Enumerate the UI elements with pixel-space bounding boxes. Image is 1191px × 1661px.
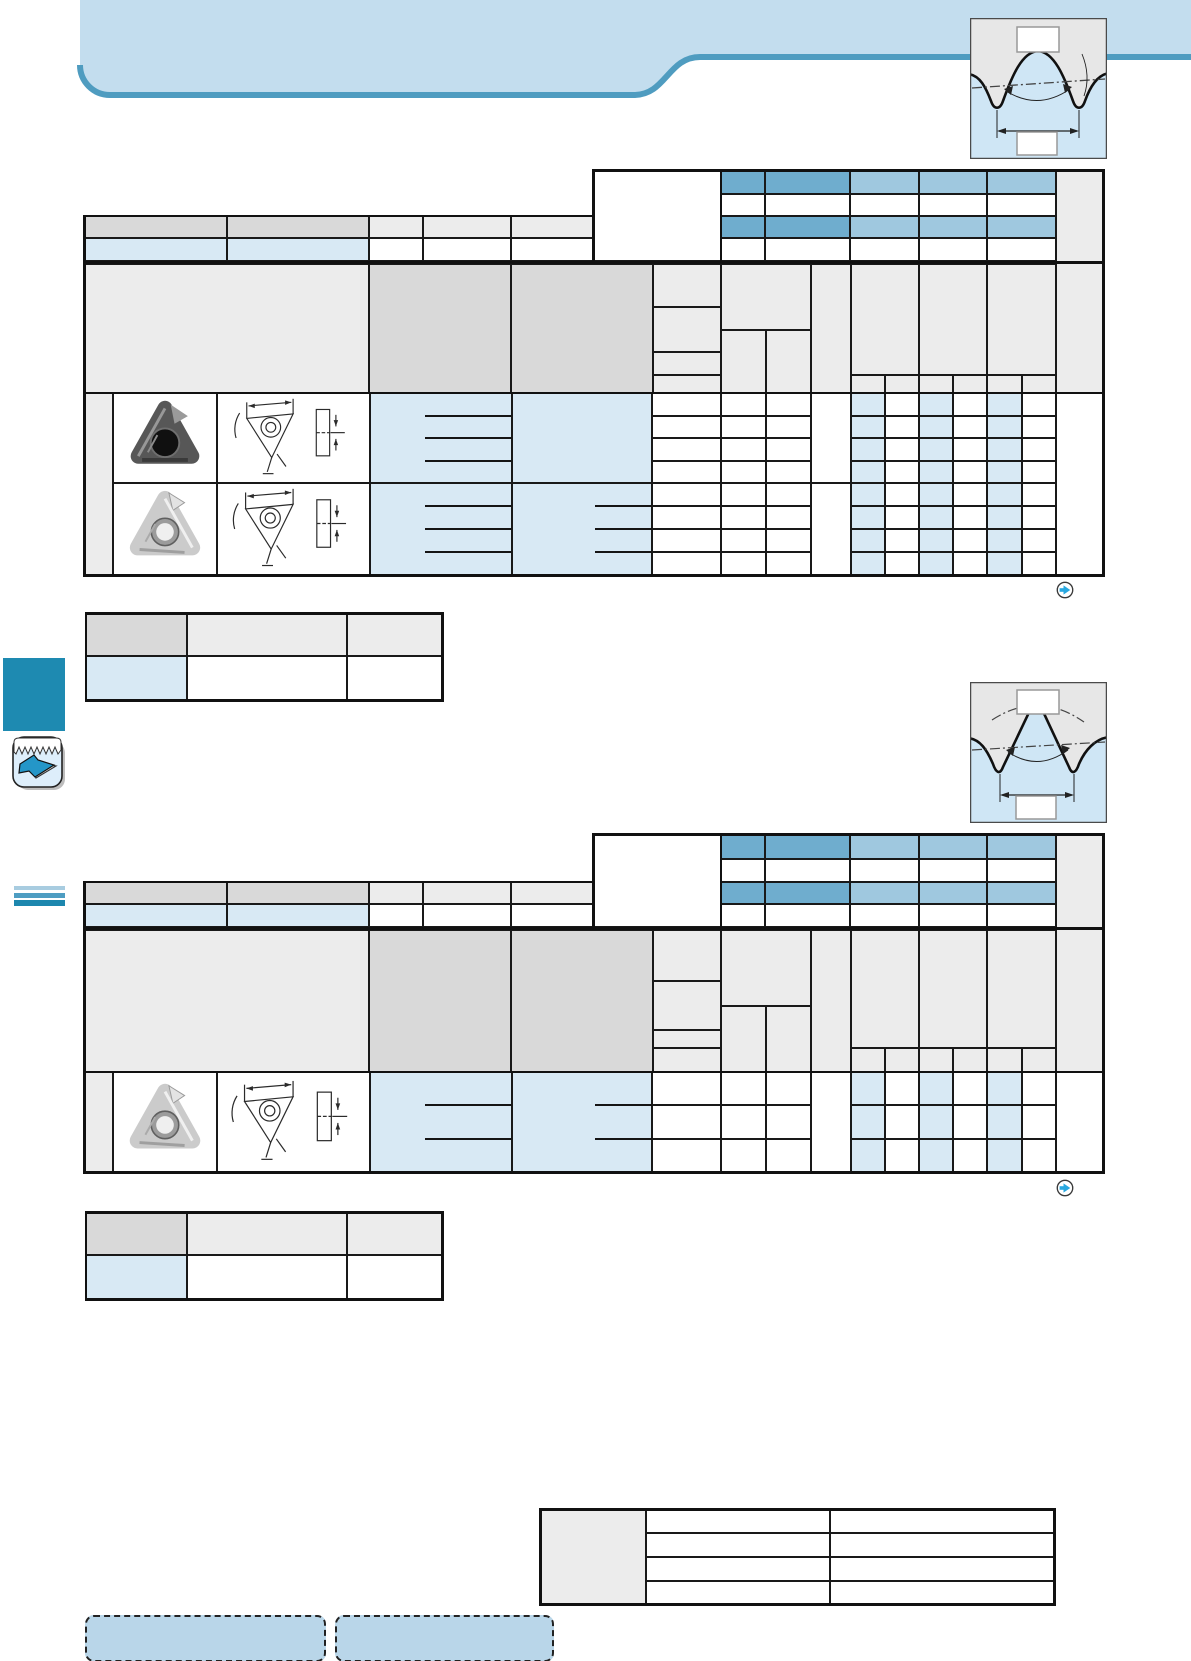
table-border [1102, 833, 1105, 1174]
grade-cell [1022, 506, 1056, 529]
header-cell [851, 930, 919, 1048]
grade-cell [851, 393, 885, 416]
grade-cell [953, 1105, 987, 1138]
header-cell [850, 194, 919, 216]
thread-profile-diagram-full [970, 18, 1107, 164]
header-cell [85, 264, 369, 393]
header-cell [653, 375, 721, 393]
table-border [85, 612, 88, 701]
designation-line [425, 1104, 512, 1106]
dimension-cell [652, 393, 721, 416]
grade-cell [851, 461, 885, 484]
header-cell [766, 1006, 811, 1072]
note-header-cell [187, 613, 347, 656]
grade-cell [851, 506, 885, 529]
catalog-page [0, 0, 1191, 1661]
header-cell [721, 859, 765, 882]
header-cell [653, 307, 721, 352]
reference-cell [830, 1533, 1055, 1557]
grade-cell [987, 438, 1022, 461]
header-cell [850, 216, 919, 238]
header-cell [811, 264, 851, 393]
dimension-cell [766, 483, 811, 506]
note-header-cell [86, 613, 187, 656]
grade-cell [987, 393, 1022, 416]
table-border [85, 1211, 88, 1300]
header-cell [369, 238, 423, 261]
header-cell [511, 264, 653, 393]
header-cell [850, 904, 919, 927]
grade-cell [851, 1139, 885, 1172]
grade-cell [885, 416, 919, 439]
header-cell [653, 1048, 721, 1072]
designation-cell [512, 393, 652, 483]
table-border [720, 834, 722, 927]
header-cell [721, 330, 766, 393]
grade-cell [885, 1105, 919, 1138]
header-cell [919, 930, 987, 1048]
table-border [83, 1071, 1105, 1074]
grade-cell [1022, 1139, 1056, 1172]
grade-cell [1022, 416, 1056, 439]
designation-line [595, 528, 652, 530]
header-cell [765, 882, 850, 904]
header-cell [953, 375, 987, 393]
header-cell [953, 1048, 987, 1072]
dimension-cell [721, 552, 766, 575]
index-stripe-2 [14, 893, 65, 898]
table-border [83, 927, 1105, 930]
note-header-cell [187, 1212, 347, 1255]
table-border [592, 169, 1105, 172]
stock-cell [1056, 1072, 1105, 1172]
index-stripe-3 [14, 900, 65, 906]
insert-photo [116, 397, 214, 479]
grade-cell [1022, 393, 1056, 416]
header-cell [653, 264, 721, 307]
dimension-cell [721, 1139, 766, 1172]
table-border [85, 612, 444, 615]
header-cell [919, 170, 987, 194]
header-cell [423, 238, 511, 261]
dimension-cell [766, 461, 811, 484]
dimension-cell [766, 393, 811, 416]
note-cell [347, 1255, 443, 1299]
table-border [83, 392, 1105, 395]
insert-drawing [224, 1076, 364, 1168]
table-border [592, 833, 1105, 836]
designation-cell [512, 1072, 652, 1172]
reference-cell [830, 1581, 1055, 1605]
header-cell [919, 904, 987, 927]
header-cell [765, 170, 850, 194]
table-border [83, 215, 86, 577]
grade-cell [885, 461, 919, 484]
header-cell [721, 170, 765, 194]
grade-cell [919, 529, 953, 552]
dimension-cell [652, 461, 721, 484]
grade-cell [1022, 552, 1056, 575]
diagram-label-box [1016, 796, 1056, 819]
table-border [84, 881, 593, 883]
header-cell [369, 216, 423, 238]
designation-line [425, 505, 512, 507]
designation-line [425, 1138, 512, 1140]
grade-cell [987, 416, 1022, 439]
dimension-cell [721, 416, 766, 439]
insert-photo [116, 487, 214, 571]
header-cell [851, 1048, 885, 1072]
note-cell [187, 1255, 347, 1299]
dimension-cell [721, 483, 766, 506]
header-cell [851, 264, 919, 375]
dimension-cell [652, 438, 721, 461]
grade-cell [885, 1072, 919, 1105]
related-link-box-2[interactable] [335, 1615, 554, 1661]
header-cell [987, 194, 1056, 216]
grade-cell [885, 552, 919, 575]
grade-cell [851, 1072, 885, 1105]
index-stripe-1 [14, 886, 65, 890]
dimension-cell [811, 483, 851, 575]
header-cell [1022, 375, 1056, 393]
reference-cell [646, 1509, 830, 1533]
header-cell [423, 904, 511, 927]
header-side-cell [1056, 170, 1105, 393]
dimension-cell [652, 1105, 721, 1138]
designation-line [425, 415, 512, 417]
grade-cell [851, 552, 885, 575]
header-cell [919, 1048, 953, 1072]
table-border [83, 1171, 1105, 1174]
header-cell [85, 930, 369, 1072]
header-cell [919, 264, 987, 375]
grade-cell [919, 393, 953, 416]
grade-cell [1022, 529, 1056, 552]
grade-cell [919, 1105, 953, 1138]
header-cell [850, 170, 919, 194]
header-cell [765, 859, 850, 882]
dimension-cell [721, 529, 766, 552]
table-border [441, 1211, 444, 1300]
header-cell [369, 882, 423, 904]
header-cell [721, 194, 765, 216]
table-border [85, 1211, 444, 1214]
grade-cell [953, 506, 987, 529]
table-border [592, 833, 595, 927]
header-cell [369, 264, 511, 393]
header-cell [919, 882, 987, 904]
grade-cell [885, 438, 919, 461]
header-cell [721, 904, 765, 927]
grade-cell [953, 461, 987, 484]
table-border [84, 215, 593, 217]
dimension-cell [721, 393, 766, 416]
grade-cell [919, 461, 953, 484]
header-side-cell [1056, 834, 1105, 1072]
header-cell [811, 930, 851, 1072]
header-cell [721, 264, 811, 330]
header-cell [766, 330, 811, 393]
insert-drawing [224, 397, 364, 479]
header-cell [919, 859, 987, 882]
header-cell [987, 1048, 1022, 1072]
header-cell [850, 834, 919, 859]
header-cell [851, 375, 885, 393]
header-cell [511, 930, 653, 1072]
table-border [539, 1603, 1056, 1606]
dimension-cell [766, 529, 811, 552]
header-cell [653, 981, 721, 1030]
grade-cell [953, 416, 987, 439]
header-cell [653, 1030, 721, 1048]
header-cell [987, 930, 1056, 1048]
header-cell [885, 375, 919, 393]
diagram-label-box [1017, 690, 1059, 714]
dimension-cell [721, 506, 766, 529]
header-cell [850, 882, 919, 904]
dimension-cell [766, 1072, 811, 1105]
reference-cell [646, 1557, 830, 1581]
grade-cell [885, 529, 919, 552]
note-cell [86, 1255, 187, 1299]
reference-header-cell [540, 1509, 646, 1605]
header-cell [423, 216, 511, 238]
diagram-label-box [1017, 132, 1057, 155]
header-cell [987, 904, 1056, 927]
insert-size-box [593, 834, 721, 927]
grade-cell [953, 552, 987, 575]
note-cell [86, 656, 187, 700]
header-cell [765, 238, 850, 261]
grade-cell [919, 506, 953, 529]
header-cell [919, 834, 987, 859]
designation-line [595, 1138, 652, 1140]
header-cell [721, 834, 765, 859]
grade-cell [987, 506, 1022, 529]
table-border [85, 1298, 444, 1301]
related-link-box-1[interactable] [85, 1615, 326, 1661]
header-cell [919, 375, 953, 393]
grade-cell [851, 483, 885, 506]
header-cell [511, 216, 593, 238]
standard-strip-cell [85, 393, 113, 575]
insert-photo [116, 1076, 214, 1168]
grade-cell [953, 529, 987, 552]
note-header-cell [86, 1212, 187, 1255]
grade-cell [953, 1072, 987, 1105]
header-cell [423, 882, 511, 904]
header-cell [227, 882, 369, 904]
dimension-cell [721, 438, 766, 461]
dimension-cell [811, 1072, 851, 1172]
header-cell [919, 216, 987, 238]
header-cell [1022, 1048, 1056, 1072]
header-cell [765, 194, 850, 216]
grade-cell [987, 1105, 1022, 1138]
reference-cell [646, 1533, 830, 1557]
grade-cell [987, 483, 1022, 506]
reference-cell [646, 1581, 830, 1605]
grade-cell [987, 1139, 1022, 1172]
header-cell [85, 904, 227, 927]
header-cell [653, 930, 721, 981]
designation-line [425, 437, 512, 439]
header-cell [987, 834, 1056, 859]
table-border [83, 574, 1105, 577]
dimension-cell [652, 1139, 721, 1172]
header-cell [721, 930, 811, 1006]
dimension-cell [652, 1072, 721, 1105]
table-border [720, 170, 722, 261]
reference-cell [830, 1509, 1055, 1533]
grade-cell [919, 483, 953, 506]
table-border [1053, 1508, 1056, 1605]
header-cell [369, 904, 423, 927]
header-cell [987, 264, 1056, 375]
grade-cell [987, 529, 1022, 552]
dimension-cell [721, 1072, 766, 1105]
header-cell [919, 238, 987, 261]
dimension-cell [652, 529, 721, 552]
header-cell [721, 238, 765, 261]
note-cell [347, 656, 443, 700]
dimension-cell [766, 1139, 811, 1172]
table-border [83, 881, 86, 1174]
grade-cell [987, 1072, 1022, 1105]
table-border [441, 612, 444, 701]
grade-cell [885, 506, 919, 529]
table-border [539, 1508, 542, 1605]
table-border [83, 261, 1105, 264]
grade-cell [953, 438, 987, 461]
designation-line [595, 505, 652, 507]
grade-cell [851, 416, 885, 439]
header-cell [987, 882, 1056, 904]
grade-cell [1022, 483, 1056, 506]
grade-cell [1022, 1072, 1056, 1105]
header-cell [511, 882, 593, 904]
header-cell [511, 238, 593, 261]
grade-cell [919, 1072, 953, 1105]
dimension-cell [811, 393, 851, 483]
table-border [592, 169, 595, 261]
dimension-cell [766, 506, 811, 529]
header-cell [987, 216, 1056, 238]
grade-cell [1022, 461, 1056, 484]
header-cell [885, 1048, 919, 1072]
dimension-cell [766, 552, 811, 575]
standard-strip-cell [85, 1072, 113, 1172]
header-cell [369, 930, 511, 1072]
grade-cell [919, 1139, 953, 1172]
designation-line [595, 551, 652, 553]
threading-category-icon [10, 735, 68, 798]
insert-size-box [593, 170, 721, 261]
table-border [1102, 169, 1105, 577]
header-cell [987, 170, 1056, 194]
diagram-label-box [1017, 27, 1059, 52]
grade-cell [1022, 1105, 1056, 1138]
header-cell [765, 834, 850, 859]
header-cell [85, 238, 227, 261]
section-color-block [3, 658, 65, 731]
grade-cell [919, 438, 953, 461]
grade-cell [953, 483, 987, 506]
dimension-cell [652, 552, 721, 575]
header-cell [765, 904, 850, 927]
dimension-cell [766, 438, 811, 461]
stock-cell [1056, 393, 1105, 575]
header-cell [987, 238, 1056, 261]
insert-drawing [224, 487, 364, 571]
dimension-cell [652, 483, 721, 506]
dimension-cell [721, 461, 766, 484]
header-cell [721, 882, 765, 904]
header-cell [850, 859, 919, 882]
designation-line [425, 528, 512, 530]
header-cell [511, 904, 593, 927]
reference-cell [830, 1557, 1055, 1581]
header-cell [721, 216, 765, 238]
grade-cell [885, 393, 919, 416]
grade-cell [851, 529, 885, 552]
grade-cell [919, 552, 953, 575]
header-cell [227, 238, 369, 261]
grade-cell [987, 461, 1022, 484]
designation-line [595, 1104, 652, 1106]
header-cell [85, 882, 227, 904]
next-page-arrow-button[interactable] [1056, 1179, 1074, 1202]
thread-profile-diagram-partial [970, 682, 1107, 828]
designation-line [425, 551, 512, 553]
dimension-cell [766, 416, 811, 439]
header-cell [987, 859, 1056, 882]
grade-cell [1022, 438, 1056, 461]
table-border [539, 1508, 1056, 1511]
grade-cell [919, 416, 953, 439]
header-cell [227, 216, 369, 238]
note-header-cell [347, 613, 443, 656]
grade-cell [987, 552, 1022, 575]
header-cell [85, 216, 227, 238]
grade-cell [851, 438, 885, 461]
table-border [85, 699, 444, 702]
grade-cell [953, 393, 987, 416]
next-page-arrow-button[interactable] [1056, 581, 1074, 604]
dimension-cell [652, 506, 721, 529]
grade-cell [885, 483, 919, 506]
grade-cell [885, 1139, 919, 1172]
header-cell [765, 216, 850, 238]
note-header-cell [347, 1212, 443, 1255]
header-cell [227, 904, 369, 927]
dimension-cell [766, 1105, 811, 1138]
header-cell [850, 238, 919, 261]
note-cell [187, 656, 347, 700]
header-cell [987, 375, 1022, 393]
grade-cell [953, 1139, 987, 1172]
dimension-cell [721, 1105, 766, 1138]
grade-cell [851, 1105, 885, 1138]
header-cell [653, 352, 721, 375]
designation-line [425, 460, 512, 462]
header-cell [919, 194, 987, 216]
dimension-cell [652, 416, 721, 439]
header-cell [721, 1006, 766, 1072]
designation-cell [370, 1072, 512, 1172]
